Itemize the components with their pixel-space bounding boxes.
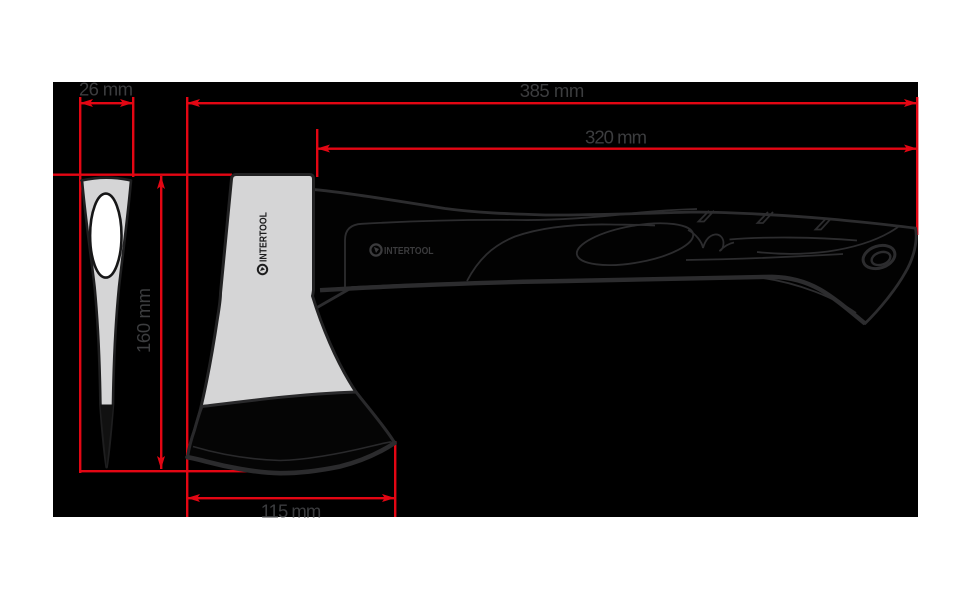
svg-text:INTERTOOL: INTERTOOL — [384, 246, 434, 257]
svg-text:INTERTOOL: INTERTOOL — [259, 212, 270, 262]
svg-text:115 mm: 115 mm — [261, 501, 322, 522]
svg-text:320 mm: 320 mm — [585, 127, 647, 148]
svg-text:26 mm: 26 mm — [79, 79, 133, 100]
svg-text:385 mm: 385 mm — [520, 80, 585, 101]
svg-text:160 mm: 160 mm — [133, 288, 154, 353]
